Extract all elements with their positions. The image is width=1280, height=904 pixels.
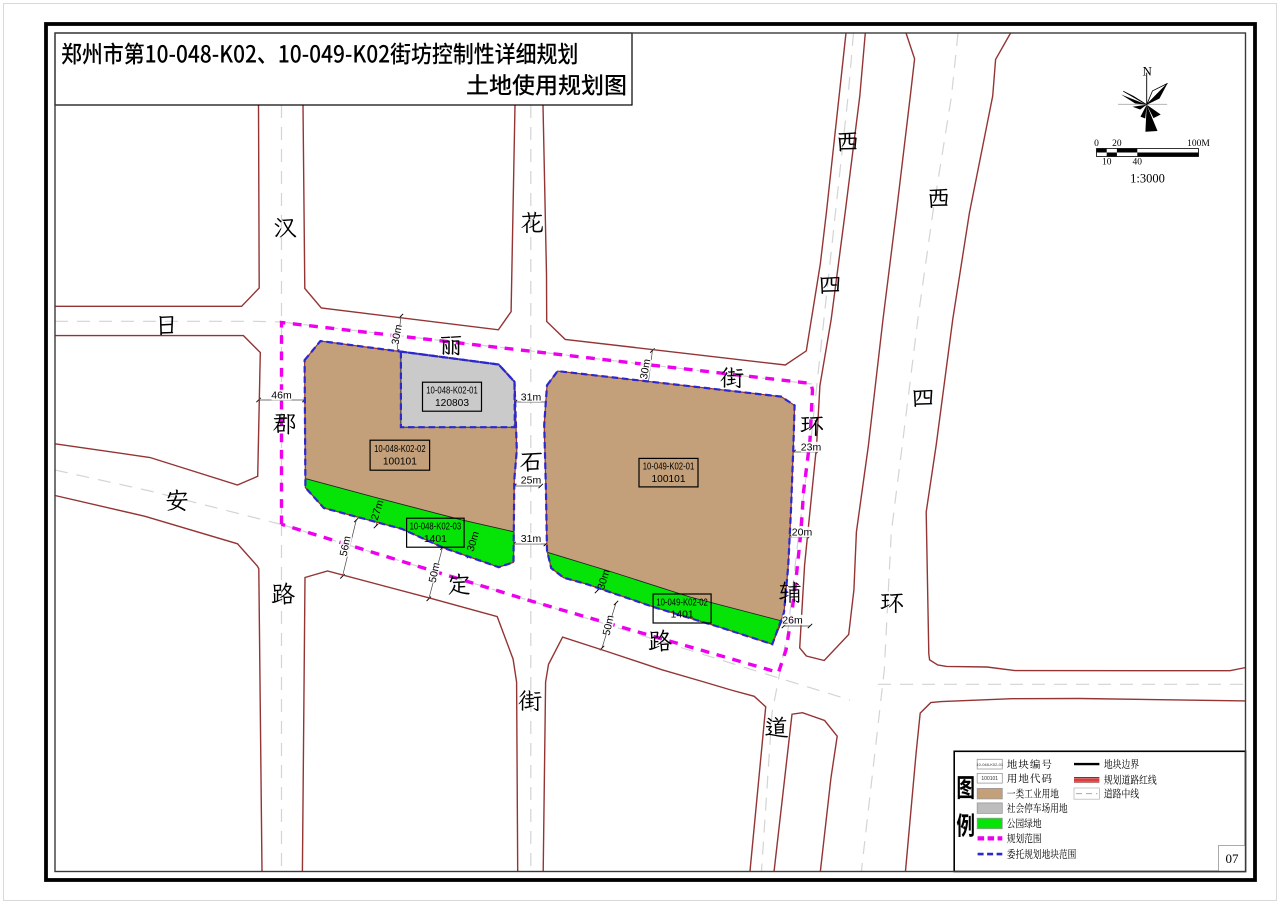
svg-text:10-048-K02-03: 10-048-K02-03 bbox=[410, 522, 462, 533]
svg-text:46m: 46m bbox=[271, 390, 292, 402]
svg-text:20m: 20m bbox=[792, 527, 813, 539]
svg-text:100101: 100101 bbox=[652, 474, 686, 485]
svg-text:10-049-K02-01: 10-049-K02-01 bbox=[643, 462, 695, 473]
svg-text:31m: 31m bbox=[521, 391, 542, 403]
svg-text:07: 07 bbox=[1226, 851, 1240, 866]
svg-text:120803: 120803 bbox=[435, 398, 469, 409]
svg-text:23m: 23m bbox=[801, 442, 822, 454]
svg-text:20: 20 bbox=[1112, 139, 1122, 149]
svg-text:10-048-K02-01: 10-048-K02-01 bbox=[426, 386, 478, 397]
svg-text:10-049-K02-02: 10-049-K02-02 bbox=[656, 597, 708, 608]
svg-text:N: N bbox=[1143, 64, 1153, 79]
svg-text:100M: 100M bbox=[1187, 139, 1210, 149]
svg-text:1401: 1401 bbox=[671, 610, 694, 621]
svg-text:1:3000: 1:3000 bbox=[1130, 172, 1165, 186]
svg-text:25m: 25m bbox=[521, 475, 542, 487]
svg-text:10-048-K02-02: 10-048-K02-02 bbox=[374, 444, 426, 455]
svg-text:100101: 100101 bbox=[981, 776, 998, 782]
svg-text:1401: 1401 bbox=[424, 534, 447, 545]
svg-text:0: 0 bbox=[1094, 139, 1099, 149]
svg-text:10-048-K02-01: 10-048-K02-01 bbox=[976, 762, 1003, 767]
svg-text:100101: 100101 bbox=[383, 456, 417, 467]
svg-text:40: 40 bbox=[1133, 158, 1143, 168]
svg-text:31m: 31m bbox=[521, 533, 542, 545]
svg-text:26m: 26m bbox=[782, 615, 803, 627]
svg-text:10: 10 bbox=[1102, 158, 1112, 168]
